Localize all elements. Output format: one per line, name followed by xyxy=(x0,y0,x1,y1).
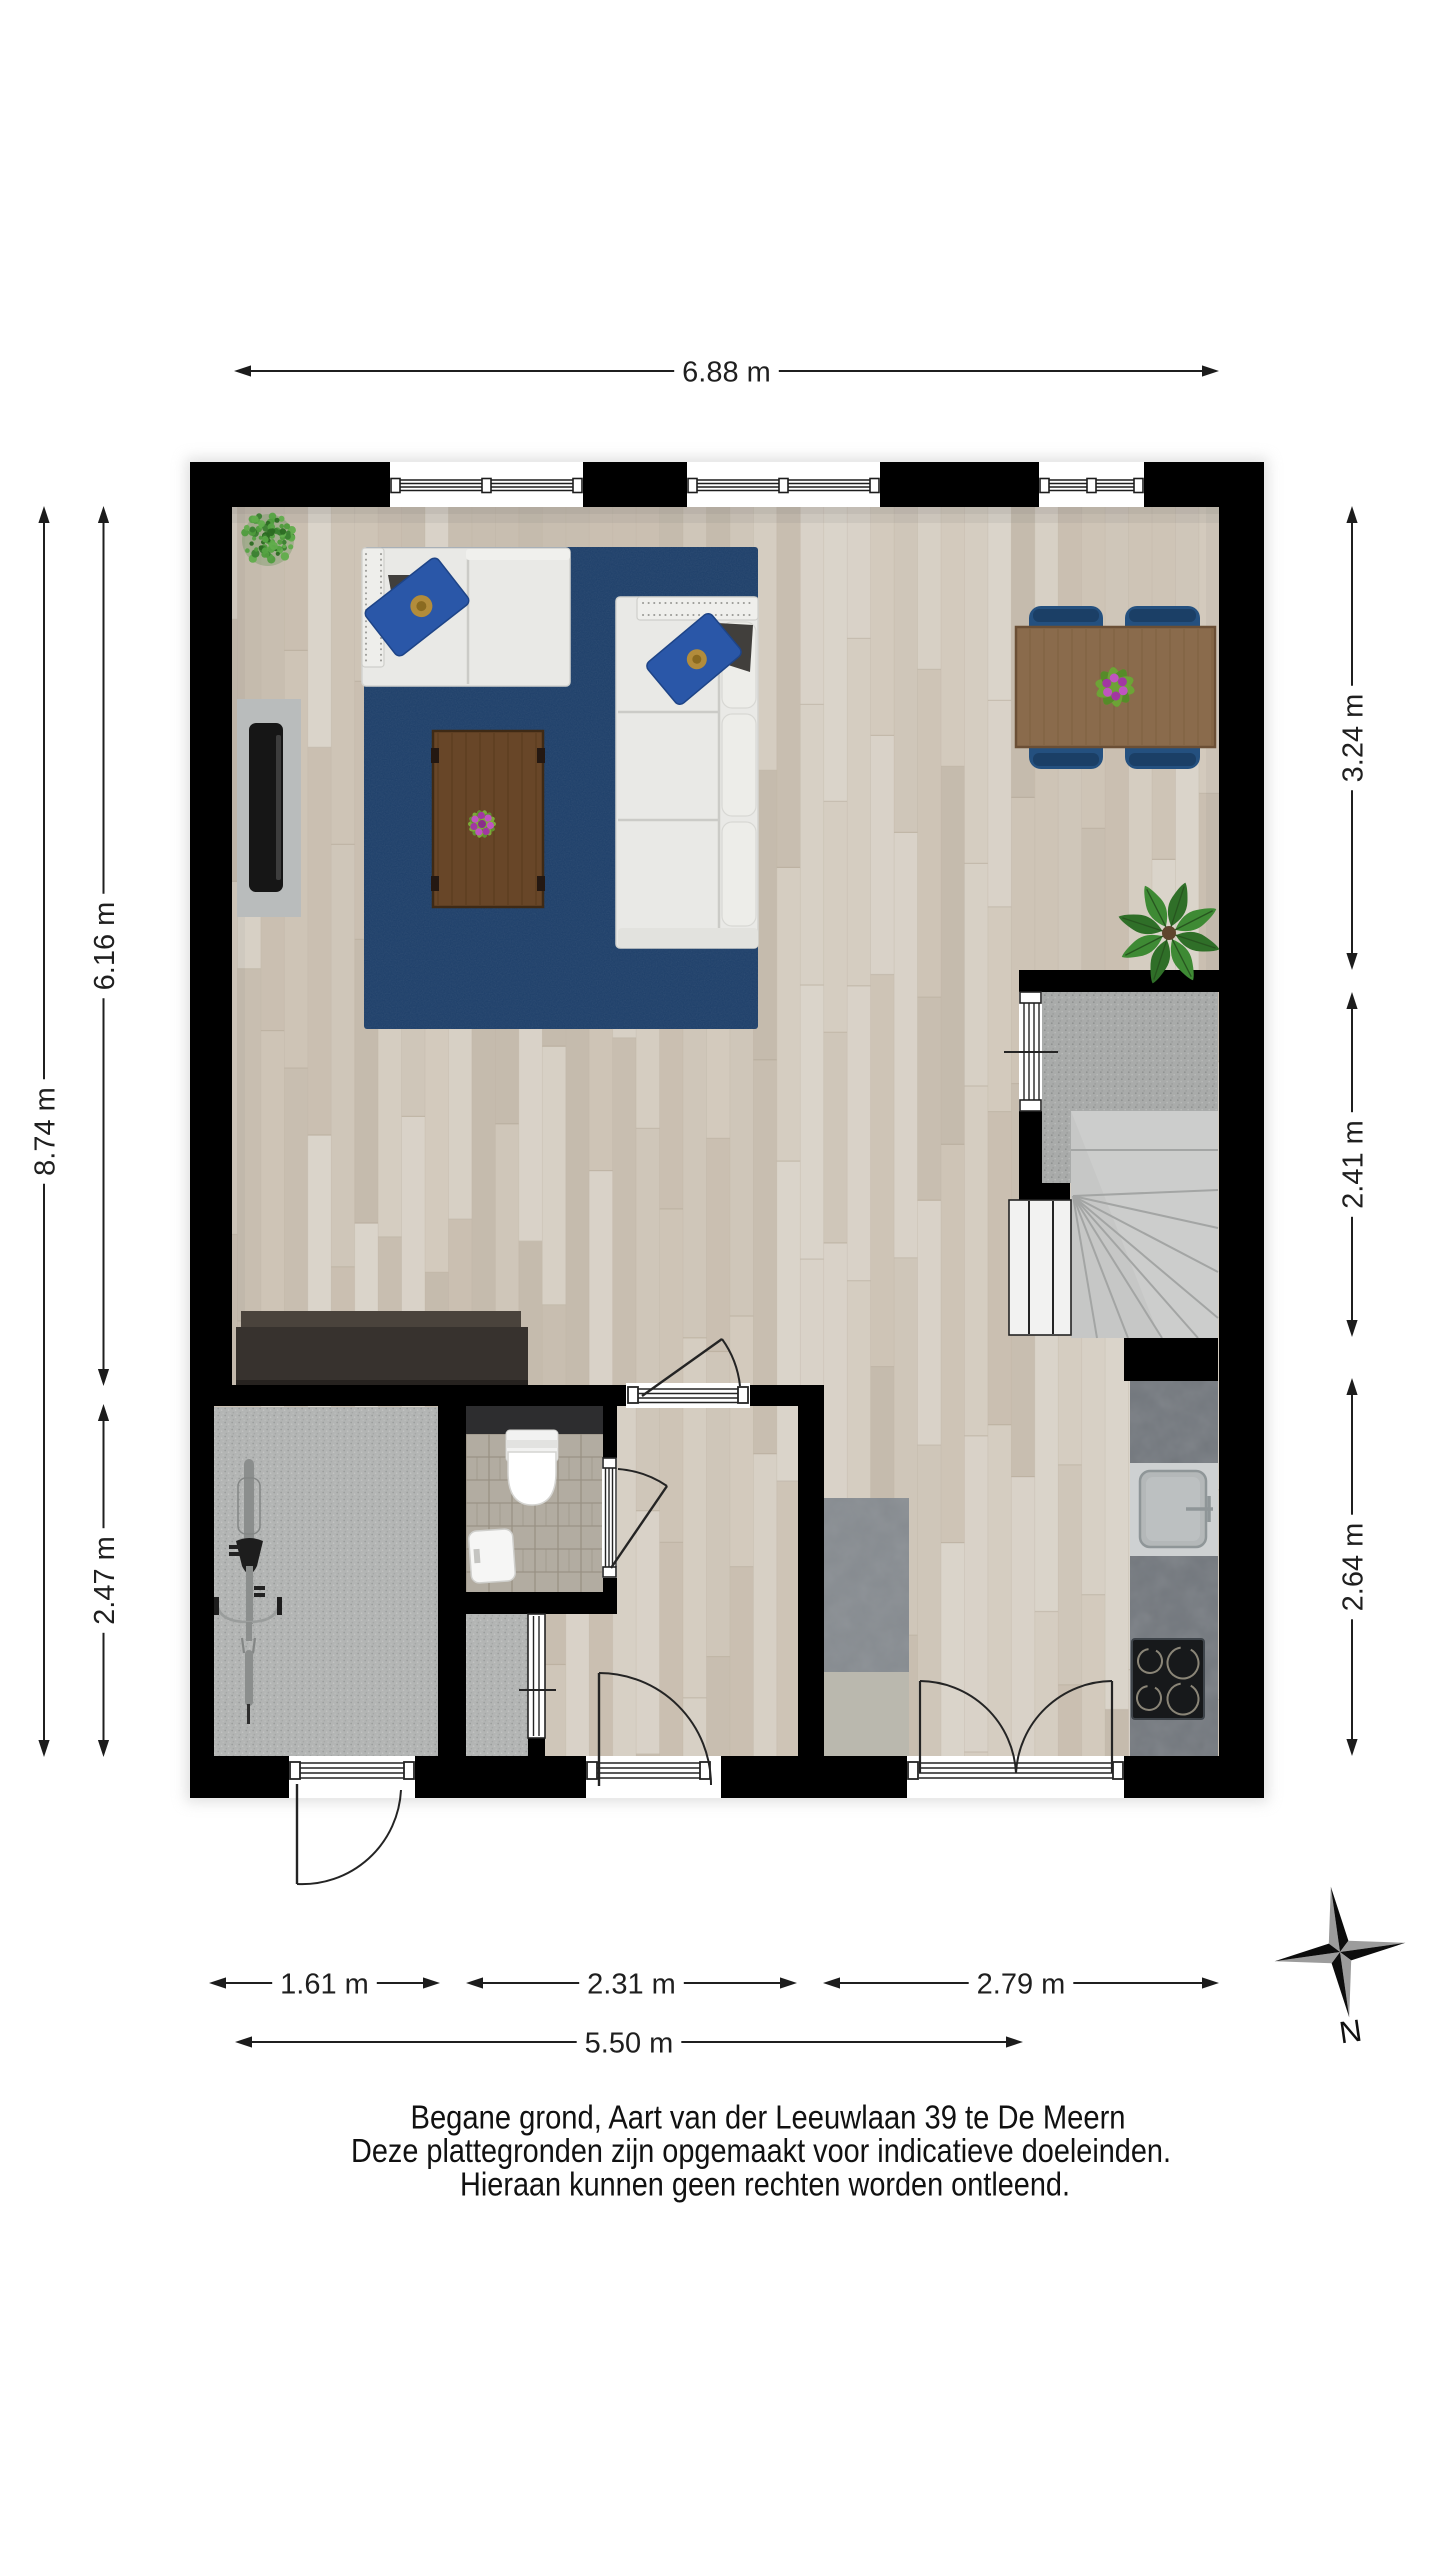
svg-text:3.24 m: 3.24 m xyxy=(1337,694,1369,783)
svg-text:6.16 m: 6.16 m xyxy=(89,902,121,991)
svg-text:Deze plattegronden zijn opgema: Deze plattegronden zijn opgemaakt voor i… xyxy=(351,2133,1171,2170)
svg-text:2.41 m: 2.41 m xyxy=(1337,1120,1369,1209)
svg-text:2.64 m: 2.64 m xyxy=(1337,1523,1369,1612)
svg-text:Hieraan kunnen geen rechten wo: Hieraan kunnen geen rechten worden ontle… xyxy=(460,2167,1070,2204)
svg-text:1.61 m: 1.61 m xyxy=(280,1968,369,2000)
svg-text:2.47 m: 2.47 m xyxy=(89,1536,121,1625)
svg-text:2.31 m: 2.31 m xyxy=(587,1968,676,2000)
svg-text:8.74 m: 8.74 m xyxy=(29,1087,61,1176)
svg-text:Begane grond, Aart van der Lee: Begane grond, Aart van der Leeuwlaan 39 … xyxy=(411,2100,1126,2137)
svg-text:2.79 m: 2.79 m xyxy=(977,1968,1066,2000)
svg-text:5.50 m: 5.50 m xyxy=(585,2027,674,2059)
svg-text:6.88 m: 6.88 m xyxy=(682,356,771,388)
